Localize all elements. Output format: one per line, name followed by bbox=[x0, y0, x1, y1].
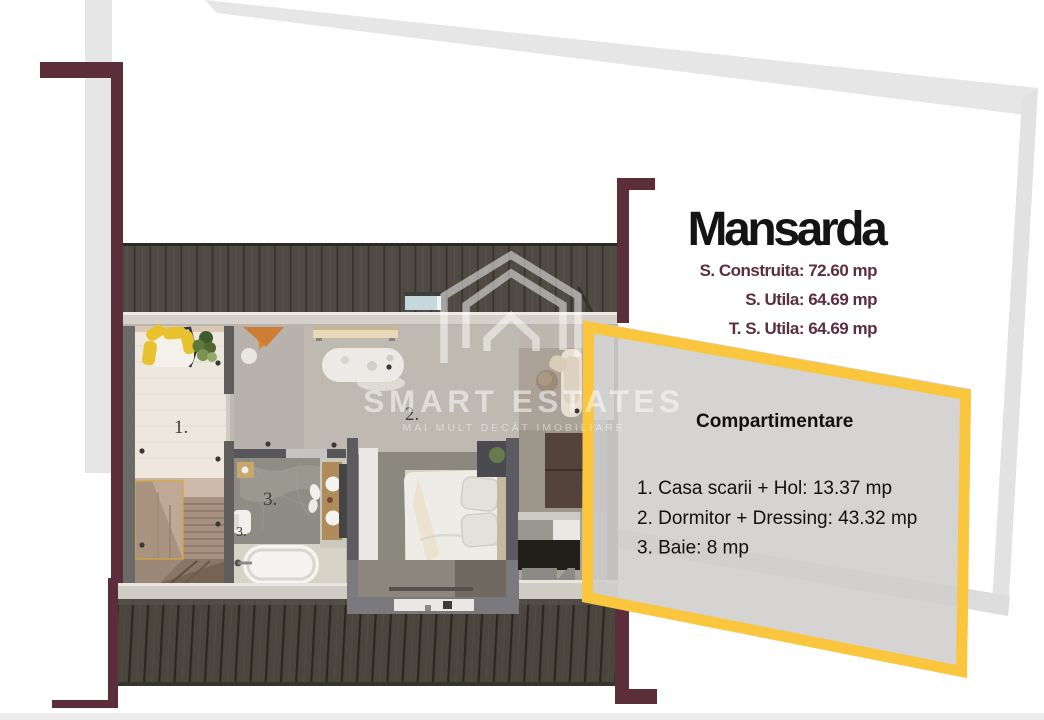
svg-text:1. Casa scarii + Hol: 13.37 mp: 1. Casa scarii + Hol: 13.37 mp bbox=[637, 478, 892, 499]
svg-text:Mansarda: Mansarda bbox=[688, 203, 889, 256]
svg-text:MAI MULT DECÂT IMOBILIARE: MAI MULT DECÂT IMOBILIARE bbox=[402, 421, 625, 434]
svg-text:Compartimentare: Compartimentare bbox=[696, 411, 853, 432]
svg-text:3. Baie: 8 mp: 3. Baie: 8 mp bbox=[637, 538, 749, 559]
svg-text:2. Dormitor + Dressing: 43.32: 2. Dormitor + Dressing: 43.32 mp bbox=[637, 508, 917, 529]
svg-text:1.: 1. bbox=[174, 417, 188, 438]
svg-text:3.: 3. bbox=[263, 489, 277, 510]
svg-text:3.: 3. bbox=[236, 525, 247, 540]
svg-text:S. Utila: 64.69 mp: S. Utila: 64.69 mp bbox=[745, 290, 877, 309]
svg-text:SMART ESTATES: SMART ESTATES bbox=[363, 383, 684, 419]
svg-text:S. Construita: 72.60 mp: S. Construita: 72.60 mp bbox=[700, 261, 878, 280]
svg-text:T. S. Utila: 64.69 mp: T. S. Utila: 64.69 mp bbox=[729, 319, 877, 338]
